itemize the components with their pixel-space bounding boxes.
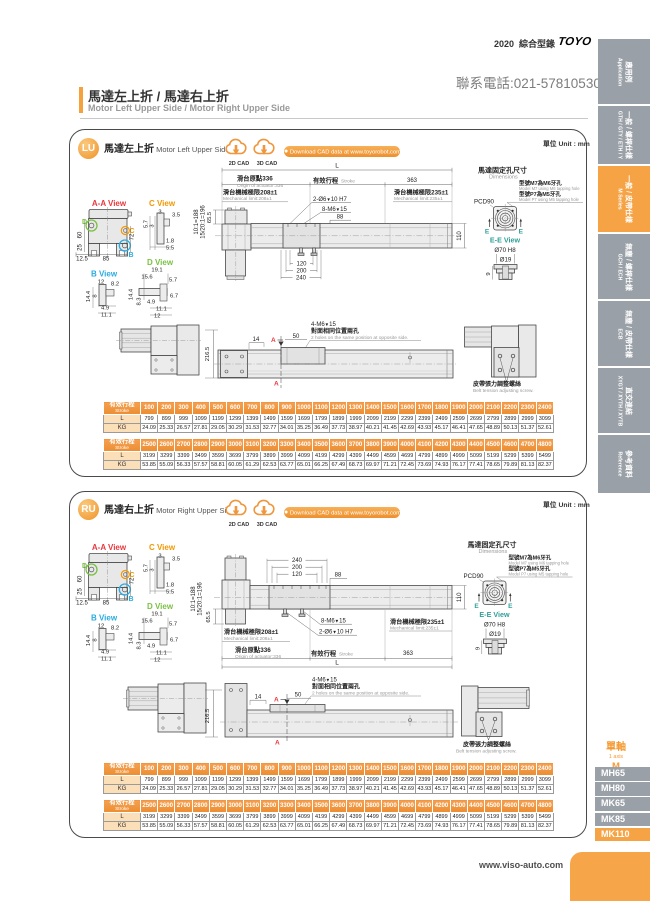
svg-text:12.5: 12.5 xyxy=(76,257,88,263)
svg-text:L: L xyxy=(335,163,339,170)
svg-text:25: 25 xyxy=(78,588,84,595)
svg-text:200: 200 xyxy=(292,565,303,571)
svg-text:65.5: 65.5 xyxy=(207,212,213,223)
svg-text:滑台原點336: 滑台原點336 xyxy=(235,645,271,654)
svg-text:240: 240 xyxy=(296,276,307,282)
svg-text:11.1: 11.1 xyxy=(101,313,112,319)
svg-text:85: 85 xyxy=(103,601,110,607)
svg-text:15.6: 15.6 xyxy=(141,619,152,625)
svg-text:9: 9 xyxy=(486,272,492,275)
svg-text:B: B xyxy=(129,596,134,603)
svg-text:Model M7 using M6 tapping hole: Model M7 using M6 tapping hole xyxy=(509,561,570,566)
svg-text:5.7: 5.7 xyxy=(169,278,177,284)
svg-text:14.4: 14.4 xyxy=(129,632,135,644)
svg-text:滑台原點336: 滑台原點336 xyxy=(237,174,273,183)
svg-text:Model M7 using M6 tapping hole: Model M7 using M6 tapping hole xyxy=(519,186,580,191)
svg-text:14: 14 xyxy=(253,337,260,343)
svg-text:3.5: 3.5 xyxy=(172,213,180,219)
svg-text:Ø19: Ø19 xyxy=(500,257,512,264)
svg-text:14.4: 14.4 xyxy=(86,290,92,302)
svg-text:皮帶張力調整螺絲: 皮帶張力調整螺絲 xyxy=(463,740,511,748)
svg-text:8.2: 8.2 xyxy=(111,626,119,632)
svg-text:滑台機械極限208±1: 滑台機械極限208±1 xyxy=(224,628,279,636)
svg-text:有效行程: 有效行程 xyxy=(313,176,339,185)
svg-text:9: 9 xyxy=(476,647,482,650)
svg-text:3: 3 xyxy=(158,210,161,216)
svg-text:5.5: 5.5 xyxy=(166,590,174,596)
svg-text:Mechanical limit:208±1: Mechanical limit:208±1 xyxy=(223,196,272,202)
svg-text:皮帶張力調整螺絲: 皮帶張力調整螺絲 xyxy=(473,380,521,388)
svg-text:200: 200 xyxy=(296,269,307,275)
svg-text:2-Ø6▼10 H7: 2-Ø6▼10 H7 xyxy=(319,630,353,636)
svg-text:8: 8 xyxy=(93,294,99,297)
svg-text:3: 3 xyxy=(150,224,156,227)
svg-text:Mechanical limit:235±1: Mechanical limit:235±1 xyxy=(394,196,443,202)
svg-text:A-A View: A-A View xyxy=(92,199,127,208)
svg-text:Dimensions: Dimensions xyxy=(489,175,518,181)
svg-text:60: 60 xyxy=(78,575,84,582)
svg-text:Model P7 using M5 tapping hole: Model P7 using M5 tapping hole xyxy=(519,197,579,202)
svg-text:60: 60 xyxy=(78,231,84,238)
svg-text:10:1=188: 10:1=188 xyxy=(194,209,200,235)
svg-text:8.3: 8.3 xyxy=(137,641,143,649)
svg-text:B: B xyxy=(129,252,134,259)
svg-text:15/20:1=196: 15/20:1=196 xyxy=(198,582,204,616)
svg-text:88: 88 xyxy=(337,215,344,221)
svg-text:14.4: 14.4 xyxy=(129,288,135,300)
svg-text:14: 14 xyxy=(255,694,262,700)
svg-text:11.1: 11.1 xyxy=(156,651,167,657)
svg-text:12: 12 xyxy=(98,624,104,630)
svg-text:85: 85 xyxy=(103,257,110,263)
svg-text:216.5: 216.5 xyxy=(205,347,211,362)
svg-text:8-M6▼15: 8-M6▼15 xyxy=(321,619,346,625)
svg-text:C View: C View xyxy=(149,199,176,208)
svg-text:4.9: 4.9 xyxy=(101,650,109,656)
svg-text:Belt tension adjusting screw.: Belt tension adjusting screw. xyxy=(473,388,534,394)
svg-text:2 holes on the same position a: 2 holes on the same position at opposite… xyxy=(312,691,409,697)
svg-text:E: E xyxy=(519,229,524,236)
svg-text:滑台機械極限208±1: 滑台機械極限208±1 xyxy=(223,189,278,197)
svg-text:11.1: 11.1 xyxy=(156,307,167,313)
svg-text:25: 25 xyxy=(78,244,84,251)
svg-text:馬達固定孔尺寸: 馬達固定孔尺寸 xyxy=(478,166,527,175)
svg-text:Dimensions: Dimensions xyxy=(479,549,508,555)
svg-text:E: E xyxy=(474,603,479,610)
svg-text:8-M6▼15: 8-M6▼15 xyxy=(322,207,347,213)
svg-text:PCD90: PCD90 xyxy=(464,573,485,580)
svg-text:3.5: 3.5 xyxy=(172,557,180,563)
svg-text:10:1=188: 10:1=188 xyxy=(191,586,197,612)
svg-text:15.6: 15.6 xyxy=(141,275,152,281)
svg-text:120: 120 xyxy=(296,262,307,268)
svg-text:4.9: 4.9 xyxy=(147,644,155,650)
svg-text:E: E xyxy=(508,603,513,610)
svg-text:15/20:1=196: 15/20:1=196 xyxy=(201,205,207,239)
svg-text:4.9: 4.9 xyxy=(147,300,155,306)
svg-text:L: L xyxy=(335,660,339,667)
svg-text:240: 240 xyxy=(292,558,303,564)
svg-text:12: 12 xyxy=(154,658,160,664)
svg-text:216.5: 216.5 xyxy=(205,709,211,724)
svg-text:Ø70 H8: Ø70 H8 xyxy=(494,247,516,254)
svg-text:C View: C View xyxy=(149,543,176,552)
svg-text:A: A xyxy=(274,697,279,704)
svg-text:Stroke: Stroke xyxy=(339,652,353,658)
svg-text:A: A xyxy=(271,337,276,344)
svg-text:8: 8 xyxy=(93,638,99,641)
svg-text:363: 363 xyxy=(403,651,414,657)
svg-text:5.5: 5.5 xyxy=(166,246,174,252)
svg-text:Stroke: Stroke xyxy=(341,179,355,185)
svg-text:Origin of actuator:336: Origin of actuator:336 xyxy=(237,183,283,189)
svg-text:Mechanical limit:235±1: Mechanical limit:235±1 xyxy=(390,626,439,632)
svg-text:Ø19: Ø19 xyxy=(489,631,501,638)
svg-text:D View: D View xyxy=(147,602,174,611)
svg-text:Origin of actuator:336: Origin of actuator:336 xyxy=(235,654,281,660)
svg-text:8.2: 8.2 xyxy=(111,282,119,288)
svg-text:4-M6▼15: 4-M6▼15 xyxy=(311,322,336,328)
svg-text:馬達固定孔尺寸: 馬達固定孔尺寸 xyxy=(468,540,517,549)
svg-text:D View: D View xyxy=(147,258,174,267)
svg-text:Ø70 H8: Ø70 H8 xyxy=(484,622,506,629)
svg-text:5.7: 5.7 xyxy=(169,622,177,628)
svg-text:2-Ø6▼10 H7: 2-Ø6▼10 H7 xyxy=(313,197,347,203)
svg-text:12.5: 12.5 xyxy=(76,601,88,607)
svg-text:110: 110 xyxy=(457,231,463,241)
svg-text:1.8: 1.8 xyxy=(166,583,174,589)
svg-text:14.4: 14.4 xyxy=(86,634,92,646)
svg-text:6.7: 6.7 xyxy=(170,638,178,644)
svg-text:Belt tension adjusting screw.: Belt tension adjusting screw. xyxy=(456,748,517,754)
svg-text:363: 363 xyxy=(407,178,418,184)
svg-text:PCD90: PCD90 xyxy=(474,199,495,206)
svg-text:88: 88 xyxy=(335,573,342,579)
svg-text:A-A View: A-A View xyxy=(92,543,127,552)
svg-text:12: 12 xyxy=(98,280,104,286)
svg-text:A: A xyxy=(274,381,279,388)
svg-text:B View: B View xyxy=(91,270,118,279)
svg-text:65.5: 65.5 xyxy=(206,611,212,622)
svg-text:B View: B View xyxy=(91,614,118,623)
svg-text:滑台機械極限235±1: 滑台機械極限235±1 xyxy=(394,189,449,197)
svg-text:E-E View: E-E View xyxy=(479,610,510,619)
svg-text:有效行程: 有效行程 xyxy=(311,649,337,658)
svg-text:E-E View: E-E View xyxy=(490,236,521,245)
svg-text:E: E xyxy=(485,229,490,236)
svg-text:50: 50 xyxy=(295,692,302,698)
svg-text:50: 50 xyxy=(293,334,300,340)
svg-text:3: 3 xyxy=(158,554,161,560)
svg-text:Model P7 using M5 tapping hole: Model P7 using M5 tapping hole xyxy=(509,572,569,577)
svg-text:6.7: 6.7 xyxy=(170,294,178,300)
svg-text:A: A xyxy=(275,740,280,747)
svg-text:8.3: 8.3 xyxy=(137,297,143,305)
svg-text:滑台機械極限235±1: 滑台機械極限235±1 xyxy=(390,618,445,626)
svg-text:對面相同位置兩孔: 對面相同位置兩孔 xyxy=(311,327,359,335)
svg-text:2 holes on the same position a: 2 holes on the same position at opposite… xyxy=(311,335,408,341)
svg-text:120: 120 xyxy=(292,572,303,578)
svg-text:19.1: 19.1 xyxy=(151,268,162,274)
svg-text:19.1: 19.1 xyxy=(151,612,162,618)
svg-text:Mechanical limit:208±1: Mechanical limit:208±1 xyxy=(224,636,273,642)
svg-text:12: 12 xyxy=(154,314,160,320)
svg-text:110: 110 xyxy=(457,592,463,602)
svg-text:11.1: 11.1 xyxy=(101,657,112,663)
svg-text:對面相同位置兩孔: 對面相同位置兩孔 xyxy=(312,682,360,690)
svg-text:4.9: 4.9 xyxy=(101,306,109,312)
svg-text:1.8: 1.8 xyxy=(166,239,174,245)
svg-text:3: 3 xyxy=(150,568,156,571)
svg-text:4-M6▼15: 4-M6▼15 xyxy=(312,678,337,684)
